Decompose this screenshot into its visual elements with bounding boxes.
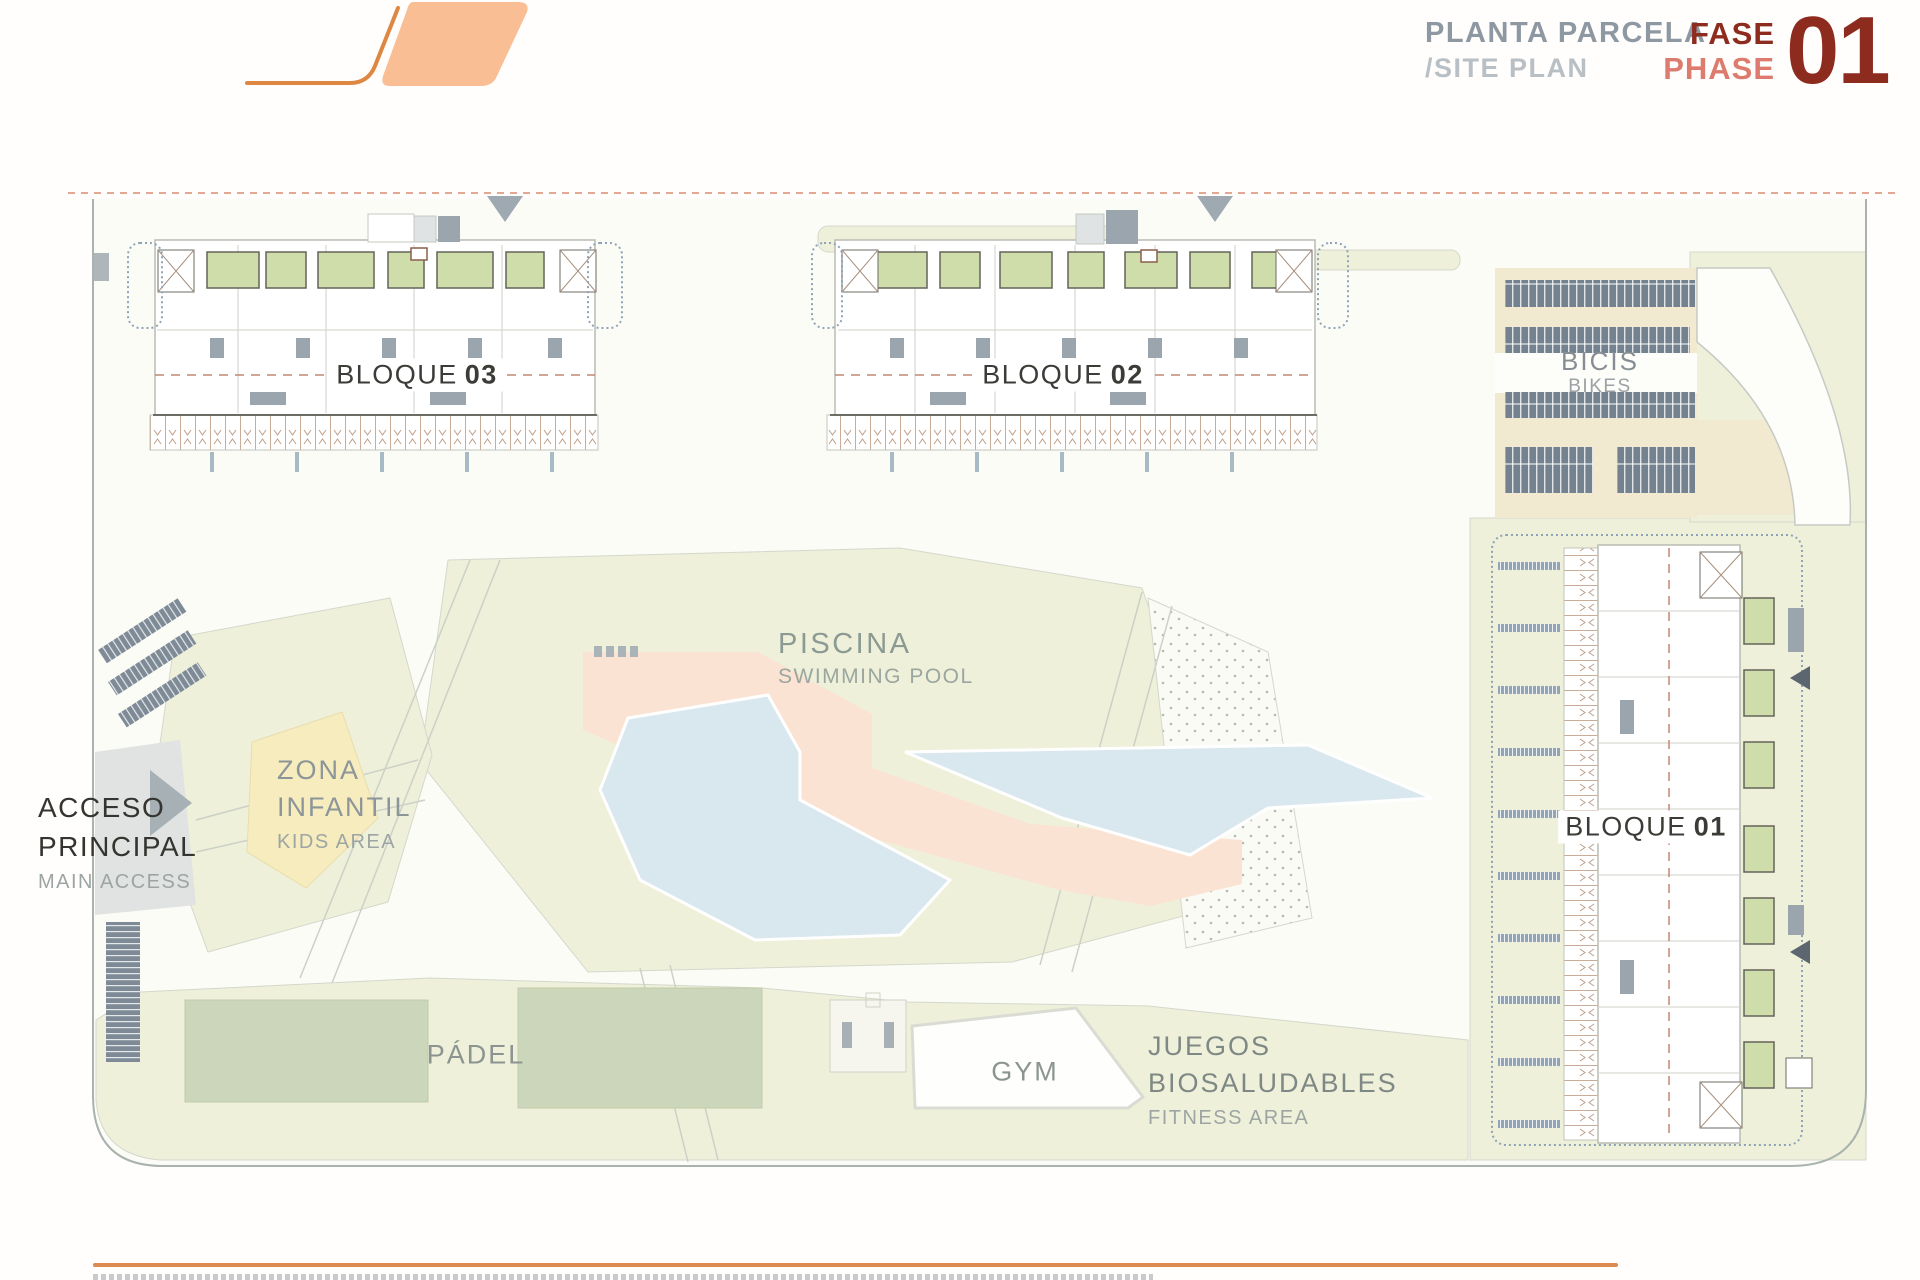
site-plan-drawing [0, 0, 1920, 1280]
hatch-column [106, 922, 140, 1062]
bike-rack [1505, 447, 1593, 493]
bike-rack [1505, 392, 1695, 418]
phase-number: 01 [1786, 6, 1889, 96]
terraces [1744, 598, 1774, 1088]
bloque-03 [128, 214, 622, 472]
brand-logo [247, 2, 528, 86]
fine-print-cropped [93, 1274, 1153, 1280]
padel-court [518, 988, 762, 1108]
phase-word-en: PHASE [1600, 51, 1775, 86]
phase-word-es: FASE [1600, 16, 1775, 51]
fitness-structure [830, 1000, 906, 1072]
phase-words: FASE PHASE [1600, 16, 1775, 86]
bike-rack [1505, 327, 1690, 353]
footer-accent-rule [93, 1263, 1618, 1267]
boundary-tab [93, 253, 109, 281]
site-plan-page: PLANTA PARCELA /SITE PLAN FASE PHASE 01 … [0, 0, 1920, 1280]
bike-rack [1505, 280, 1695, 307]
bloque-02 [812, 210, 1348, 472]
bike-rack [1617, 447, 1695, 493]
padel-court [185, 1000, 428, 1102]
